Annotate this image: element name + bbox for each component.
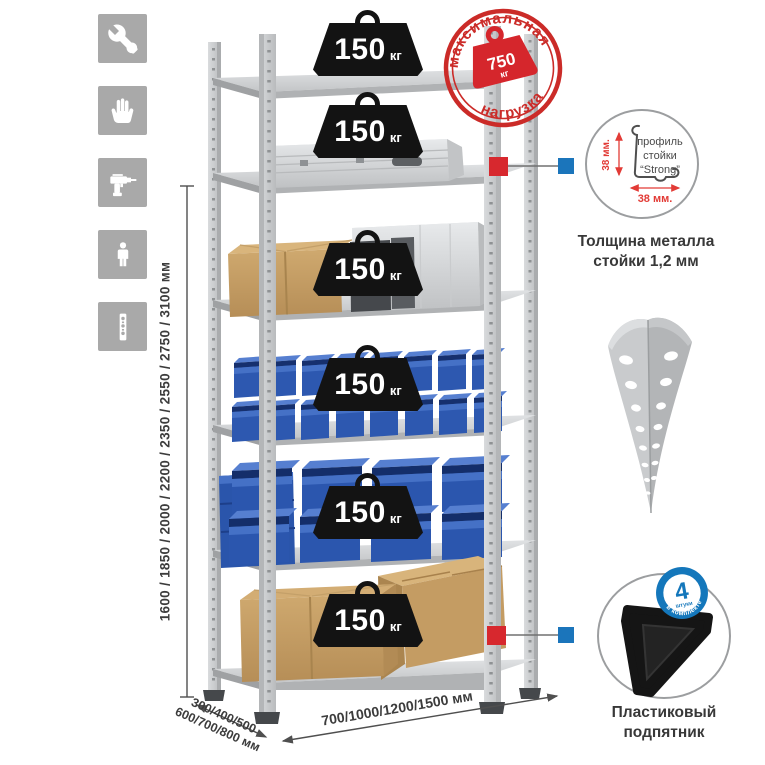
profile-label-2: стойки [643, 150, 677, 162]
max-load-stamp-art: максимальная нагрузка 750 кг [428, 0, 578, 146]
profile-detail-circle: 38 мм. 38 мм. профиль стойки “Strong” [585, 109, 699, 219]
profile-caption-line2: стойки 1,2 мм [565, 252, 727, 272]
post-front-left [259, 34, 276, 714]
profile-vertical-dim: 38 мм. [601, 139, 612, 171]
profile-label-3: “Strong” [640, 164, 680, 176]
foot-caption-line2: подпятник [584, 723, 744, 743]
weight-value: 150 [334, 253, 386, 287]
count-badge: 4 штуки в комплекте [651, 562, 714, 625]
weight-unit: кг [390, 130, 402, 145]
weight-badge-2: 150кг [313, 92, 423, 159]
weight-value: 150 [334, 368, 386, 402]
weight-badge-5: 150кг [313, 473, 423, 540]
profile-drawing: 38 мм. 38 мм. профиль стойки “Strong” [587, 111, 697, 217]
max-load-stamp: максимальная нагрузка 750 кг [428, 0, 578, 146]
profile-horizontal-dim: 38 мм. [638, 193, 673, 205]
profile-caption: Толщина металла стойки 1,2 мм [565, 232, 727, 272]
bin [438, 349, 471, 391]
weight-badge-4: 150кг [313, 345, 423, 412]
post-profile-photo [598, 308, 702, 520]
callout-square-red-top [489, 157, 508, 176]
foot-caption: Пластиковый подпятник [584, 703, 744, 743]
count-badge-art: 4 штуки в комплекте [651, 562, 714, 625]
weight-unit: кг [390, 511, 402, 526]
callout-square-blue-top [558, 158, 574, 174]
weight-value: 150 [334, 604, 386, 638]
height-dimension-line [180, 186, 194, 697]
foot-caption-line1: Пластиковый [584, 703, 744, 723]
weight-value: 150 [334, 33, 386, 67]
weight-unit: кг [390, 619, 402, 634]
weight-unit: кг [390, 383, 402, 398]
callout-square-red-bottom [487, 626, 506, 645]
weight-badge-6: 150кг [313, 581, 423, 648]
profile-label-1: профиль [637, 136, 683, 148]
callout-square-blue-bottom [558, 627, 574, 643]
weight-value: 150 [334, 115, 386, 149]
weight-unit: кг [390, 268, 402, 283]
weight-value: 150 [334, 496, 386, 530]
profile-caption-line1: Толщина металла [565, 232, 727, 252]
product-infographic: 1600 / 1850 / 2000 / 2200 / 2350 / 2550 … [0, 0, 765, 765]
weight-badge-3: 150кг [313, 230, 423, 297]
post-back-left [208, 42, 221, 692]
weight-unit: кг [390, 48, 402, 63]
weight-badge-1: 150кг [313, 10, 423, 77]
